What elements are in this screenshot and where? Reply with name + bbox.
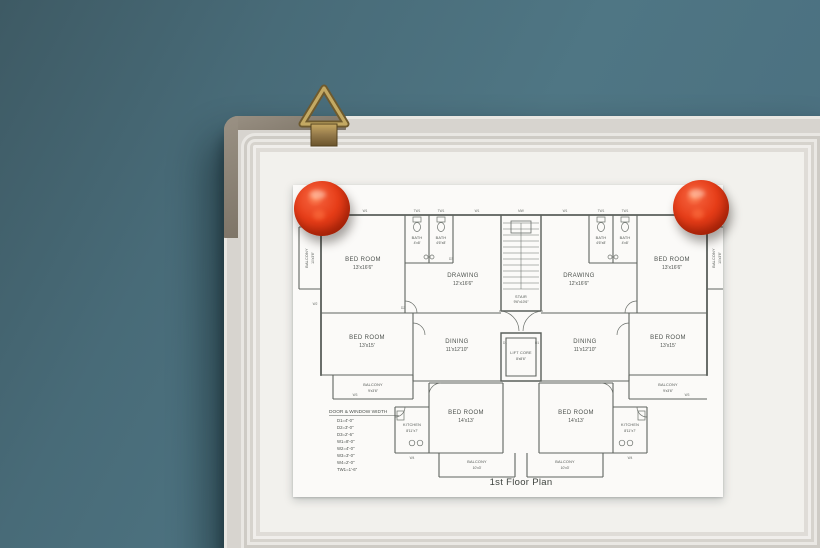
room-label-bedroom-bottom-right: BED ROOM xyxy=(558,410,594,416)
wall-code: D3 xyxy=(449,257,453,261)
floor-plan-sheet: BALCONY 10'x3'6" BALCONY 10'x3'6" BED RO… xyxy=(293,185,723,497)
room-dims-drawing-right: 12'x16'6" xyxy=(569,281,589,287)
room-dims-bedroom-mid-right: 13'x15' xyxy=(660,343,676,349)
room-dims-bedroom-bottom-left: 14'x13' xyxy=(458,418,474,424)
legend: DOOR & WINDOW WIDTH D1=4'-0" D2=3'-0" D3… xyxy=(329,409,399,472)
wall-code: TW1 xyxy=(622,209,629,213)
plan-title: 1st Floor Plan xyxy=(490,477,553,488)
legend-item: D1=4'-0" xyxy=(337,418,354,423)
room-label-stair: STAIR xyxy=(515,295,527,299)
room-dims-balcony-mid-right: 9'x3'6" xyxy=(663,389,674,393)
room-label-bedroom-mid-right: BED ROOM xyxy=(650,335,686,341)
wall-code: W3 xyxy=(685,393,690,397)
legend-item: D3=2'-6" xyxy=(337,432,354,437)
wall-code: D1 xyxy=(535,341,539,345)
room-dims-kitchen-right: 8'11"x7' xyxy=(624,429,636,433)
wall-code: TW1 xyxy=(414,209,421,213)
room-label-balcony-side-left: BALCONY xyxy=(305,248,309,268)
hanger-plate xyxy=(311,124,337,146)
room-label-bath-a-right: BATH xyxy=(620,236,631,240)
corner-cap-left xyxy=(224,116,238,238)
room-dims-dining-right: 11'x12'10" xyxy=(574,347,597,353)
wall-code: W1 xyxy=(363,209,368,213)
room-label-lift-core: LIFT CORE xyxy=(510,351,532,355)
wall-code: W4 xyxy=(628,456,633,460)
room-label-kitchen-right: KITCHEN xyxy=(621,423,639,427)
room-label-drawing-left: DRAWING xyxy=(447,273,479,279)
stair-treads xyxy=(503,221,539,289)
wall-code: TW1 xyxy=(598,209,605,213)
wall-code: D1 xyxy=(503,341,507,345)
room-dims-balcony-side-left: 10'x3'6" xyxy=(311,251,315,264)
room-dims-balcony-side-right: 10'x3'6" xyxy=(718,251,722,264)
wall-code: TW1 xyxy=(438,209,445,213)
floor-plan-drawing: BALCONY 10'x3'6" BALCONY 10'x3'6" BED RO… xyxy=(293,185,723,497)
room-label-bedroom-top-right: BED ROOM xyxy=(654,257,690,263)
room-dims-bedroom-bottom-right: 14'x13' xyxy=(568,418,584,424)
hanger xyxy=(294,82,354,156)
room-label-dining-left: DINING xyxy=(445,339,468,345)
room-dims-balcony-bottom-left: 10'x3' xyxy=(473,466,482,470)
room-dims-drawing-left: 12'x16'6" xyxy=(453,281,473,287)
room-label-balcony-mid-left: BALCONY xyxy=(363,383,383,387)
legend-item: W2=4'-0" xyxy=(337,446,355,451)
magnet-left xyxy=(294,181,350,236)
legend-item: W1=8'-0" xyxy=(337,439,355,444)
hanger-triangle-outline xyxy=(302,88,346,124)
room-dims-bedroom-mid-left: 13'x15' xyxy=(359,343,375,349)
magnet-right xyxy=(673,180,729,235)
room-label-kitchen-left: KITCHEN xyxy=(403,423,421,427)
room-dims-dining-left: 11'x12'10" xyxy=(446,347,469,353)
wall-code: W1 xyxy=(475,209,480,213)
room-dims-bath-b-right: 4'6"x8' xyxy=(596,241,606,245)
room-dims-bedroom-top-left: 13'x16'6" xyxy=(353,265,373,271)
room-label-balcony-mid-right: BALCONY xyxy=(658,383,678,387)
room-label-bedroom-top-left: BED ROOM xyxy=(345,257,381,263)
room-dims-bath-a-right: 4'x8' xyxy=(622,241,629,245)
room-label-bath-b-left: BATH xyxy=(436,236,447,240)
wall-code: W4 xyxy=(410,456,415,460)
room-label-bedroom-bottom-left: BED ROOM xyxy=(448,410,484,416)
room-dims-bath-b-left: 4'6"x8' xyxy=(436,241,446,245)
room-label-bedroom-mid-left: BED ROOM xyxy=(349,335,385,341)
hanger-hook-icon xyxy=(294,82,354,156)
wall-code: D2 xyxy=(401,306,405,310)
legend-item: W3=3'-0" xyxy=(337,453,355,458)
legend-item: TW1=1'-6" xyxy=(337,467,358,472)
room-label-bath-b-right: BATH xyxy=(596,236,607,240)
room-label-balcony-side-right: BALCONY xyxy=(712,248,716,268)
wall-code: W3 xyxy=(353,393,358,397)
room-dims-kitchen-left: 8'11"x7' xyxy=(406,429,418,433)
room-dims-bedroom-top-right: 13'x16'6" xyxy=(662,265,682,271)
room-label-bath-a-left: BATH xyxy=(412,236,423,240)
room-label-balcony-bottom-right: BALCONY xyxy=(555,460,575,464)
legend-item: W4=2'-0" xyxy=(337,460,355,465)
room-dims-balcony-bottom-right: 10'x3' xyxy=(561,466,570,470)
room-dims-balcony-mid-left: 9'x3'6" xyxy=(368,389,379,393)
photo-scene: BALCONY 10'x3'6" BALCONY 10'x3'6" BED RO… xyxy=(0,0,820,548)
room-label-drawing-right: DRAWING xyxy=(563,273,595,279)
room-dims-lift-core: 8'x8'6" xyxy=(516,357,527,361)
room-dims-stair: 9'6"x10'6" xyxy=(514,300,530,304)
kitchen-fixture-icons xyxy=(397,411,645,446)
wall-code: MW xyxy=(518,209,524,213)
wall-code: W1 xyxy=(563,209,568,213)
room-label-balcony-bottom-left: BALCONY xyxy=(467,460,487,464)
room-dims-bath-a-left: 4'x8' xyxy=(414,241,421,245)
legend-item: D2=3'-0" xyxy=(337,425,354,430)
legend-title: DOOR & WINDOW WIDTH xyxy=(329,409,388,415)
wall-code: W2 xyxy=(313,302,318,306)
room-label-dining-right: DINING xyxy=(573,339,596,345)
